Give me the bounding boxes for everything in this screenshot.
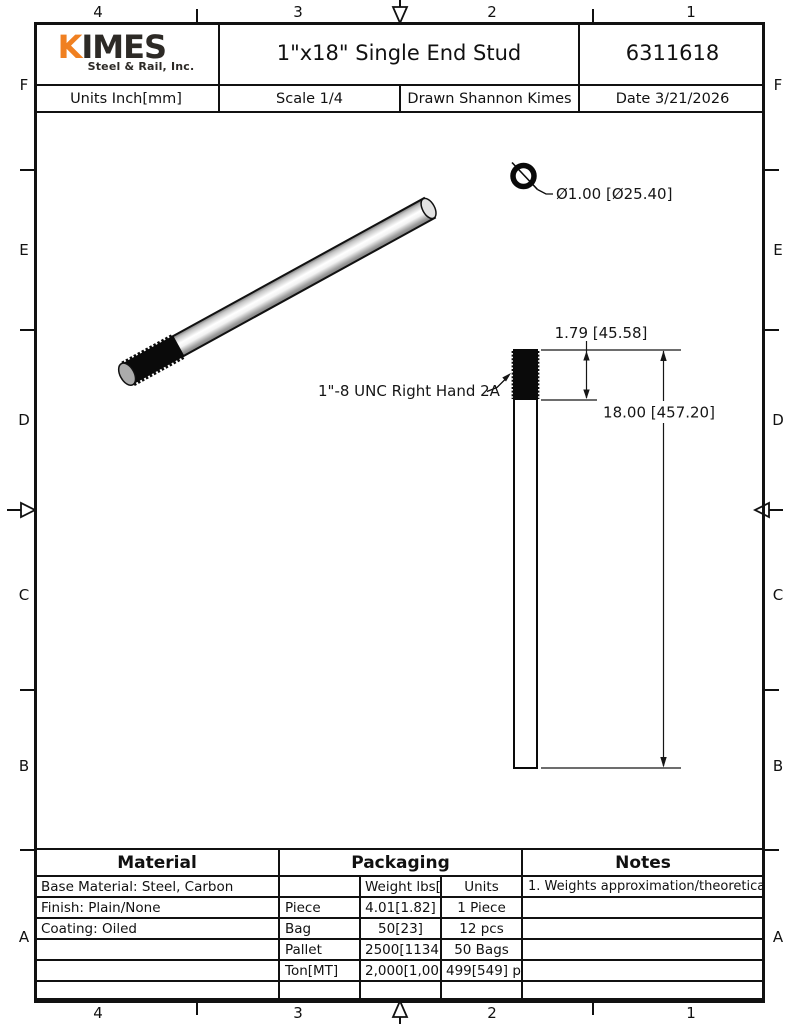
table-row: 1. Weights approximation/theoretical. [522,876,764,897]
table-row [279,981,522,1002]
table-row: Weight lbs[kgs] Units [279,876,522,897]
units-column-header: Units [441,876,522,897]
material-table: Material Base Material: Steel, Carbon Fi… [34,848,280,1003]
thread-callout: 1"-8 UNC Right Hand 2A [318,373,511,400]
packaging-header: Packaging [279,849,522,876]
table-row [35,981,279,1002]
scale-cell: Scale 1/4 [220,86,401,111]
drawing-title: 1"x18" Single End Stud [220,22,580,84]
end-view-detail: Ø1.00 [Ø25.40] [512,163,672,204]
weight-column-header: Weight lbs[kgs] [360,876,441,897]
table-row [522,897,764,918]
material-base: Base Material: Steel, Carbon [35,876,279,897]
material-header: Material [35,849,279,876]
table-row [522,981,764,1002]
table-row: Finish: Plain/None [35,897,279,918]
packaging-table: Packaging Weight lbs[kgs] Units Piece 4.… [278,848,523,1003]
isometric-stud-view [115,195,440,389]
company-logo: KIMES Steel & Rail, Inc. [34,22,220,84]
overall-length-dimension-label: 18.00 [457.20] [603,404,715,422]
table-row [522,939,764,960]
material-finish: Finish: Plain/None [35,897,279,918]
date-cell: Date 3/21/2026 [580,86,765,111]
notes-header: Notes [522,849,764,876]
logo-subtitle: Steel & Rail, Inc. [88,60,195,73]
thread-callout-label: 1"-8 UNC Right Hand 2A [318,382,501,400]
notes-table: Notes 1. Weights approximation/theoretic… [521,848,765,1003]
table-row [35,939,279,960]
title-block: KIMES Steel & Rail, Inc. 1"x18" Single E… [34,22,765,113]
table-row: Piece 4.01[1.82] 1 Piece [279,897,522,918]
table-row [522,960,764,981]
material-coating: Coating: Oiled [35,918,279,939]
table-row: Ton[MT] 2,000[1,000] 499[549] pcs [279,960,522,981]
table-row [35,960,279,981]
table-row: Base Material: Steel, Carbon [35,876,279,897]
part-number: 6311618 [580,22,765,84]
logo-k: K [58,28,82,66]
table-row [522,918,764,939]
drawing-sheet: 4 3 2 1 4 3 2 1 F E D C B A F E D C B A [0,0,791,1024]
side-view [513,350,538,768]
dimension-lines: 1.79 [45.58] 18.00 [457.20] [541,324,715,768]
table-row: Pallet 2500[1134] 50 Bags [279,939,522,960]
thread-length-dimension-label: 1.79 [45.58] [555,324,648,342]
table-row: Coating: Oiled [35,918,279,939]
note-1: 1. Weights approximation/theoretical. [522,876,764,897]
table-row: Bag 50[23] 12 pcs [279,918,522,939]
units-cell: Units Inch[mm] [34,86,220,111]
diameter-dimension-label: Ø1.00 [Ø25.40] [556,185,672,203]
info-tables: Material Base Material: Steel, Carbon Fi… [34,848,765,1001]
drawn-by-cell: Drawn Shannon Kimes [401,86,580,111]
